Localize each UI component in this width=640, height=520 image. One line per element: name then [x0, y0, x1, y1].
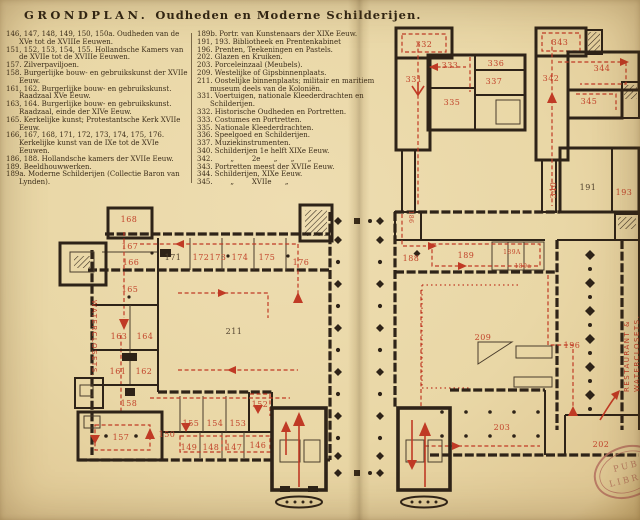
- room-label-191: 191: [580, 183, 597, 192]
- room-label-147: 147: [226, 443, 243, 452]
- route-arrow-right: [452, 442, 461, 450]
- legend-entry: 158. Burgerlijke bouw- en gebruikskunst …: [6, 70, 188, 86]
- room-label-152: 152: [252, 400, 269, 409]
- room-label-189a: 189a: [514, 263, 531, 270]
- legend-column-right: 189b. Portr. van Kunstenaars der XIXe Ee…: [197, 31, 393, 187]
- route-arrow-up: [293, 292, 303, 303]
- room-label-193: 193: [616, 188, 633, 197]
- room-label-165: 165: [122, 285, 139, 294]
- room-label-174: 174: [232, 253, 249, 262]
- room-label-337: 337: [486, 77, 503, 86]
- room-label-186: 186: [407, 211, 414, 224]
- room-label-340: 340: [549, 182, 558, 199]
- restaurant-label: RESTAURANT &: [623, 320, 631, 392]
- room-label-344: 344: [594, 64, 611, 73]
- room-label-202: 202: [593, 440, 610, 449]
- legend-entry: 161, 162. Burgerlijke bouw- en gebruiksk…: [6, 86, 188, 102]
- hall-203-202: 203 202: [425, 275, 639, 455]
- room-label-157: 157: [113, 433, 130, 442]
- room-label-150: 150: [159, 430, 176, 439]
- legend-entry: 146, 147, 148, 149, 150, 150a. Oudheden …: [6, 31, 188, 47]
- legend-entry: 345. „ XVIIe „: [197, 179, 393, 187]
- room-label-146: 146: [250, 441, 267, 450]
- central-colonnade: [334, 217, 384, 477]
- legend-entry: 211. Oostelijke binnenplaats; militair e…: [197, 78, 393, 94]
- entrance-tower-right: [398, 408, 450, 508]
- room-label-333: 333: [442, 61, 459, 70]
- route-arrow-up: [419, 422, 431, 436]
- north-gallery-right: 186 188 189 189A 189a: [395, 211, 560, 272]
- courtyard-209: 209: [421, 285, 552, 406]
- room-label-158: 158: [121, 399, 138, 408]
- north-gallery-left: 168 167 166 171 172 173 174 175 176: [88, 205, 332, 412]
- room-label-153: 153: [230, 419, 247, 428]
- room-label-164: 164: [137, 332, 154, 341]
- block-191-193: 191 193: [560, 148, 639, 240]
- route-arrow-down: [119, 319, 129, 330]
- route-arrow-left: [175, 240, 184, 248]
- room-label-154: 154: [207, 419, 224, 428]
- legend-entry: 166, 167, 168, 171, 172, 173, 174, 175, …: [6, 132, 188, 155]
- route-arrow-up: [547, 92, 557, 103]
- route-arrow-up: [145, 428, 155, 439]
- room-label-168: 168: [121, 215, 138, 224]
- room-label-203: 203: [494, 423, 511, 432]
- route-arrow-right: [218, 289, 227, 297]
- room-label-188: 188: [403, 254, 420, 263]
- route-arrow-down: [407, 460, 417, 470]
- waterclosets-label-left: WATERCLOSETS.: [90, 300, 98, 377]
- route-arrow-right: [620, 58, 629, 66]
- route-arrow-up: [281, 421, 291, 432]
- room-label-176: 176: [293, 258, 310, 267]
- legend-entry: 165. Kerkelijke kunst; Protestantsche Ke…: [6, 117, 188, 133]
- room-label-166: 166: [123, 258, 140, 267]
- room-label-211: 211: [226, 327, 243, 336]
- wing-331-337: 332 331 333 336 337 335: [396, 28, 525, 212]
- room-label-332: 332: [416, 40, 433, 49]
- route-arrow-right: [458, 262, 467, 270]
- room-label-343: 343: [552, 38, 569, 47]
- waterclosets-label-right: WATERCLOSETS.: [633, 315, 640, 392]
- room-label-345: 345: [581, 97, 598, 106]
- room-label-148: 148: [203, 443, 220, 452]
- room-label-189A: 189A: [503, 249, 521, 256]
- room-label-155: 155: [183, 419, 200, 428]
- room-label-149: 149: [181, 443, 198, 452]
- room-label-167: 167: [122, 242, 139, 251]
- legend-entry: 151, 152, 153, 154, 155. Hollandsche Kam…: [6, 47, 188, 63]
- room-label-209: 209: [475, 333, 492, 342]
- room-label-162: 162: [136, 367, 153, 376]
- room-label-175: 175: [259, 253, 276, 262]
- room-label-161: 161: [110, 367, 127, 376]
- room-label-172: 172: [193, 253, 210, 262]
- legend-entry: 331. Voertuigen, nationale Kleederdracht…: [197, 93, 393, 109]
- route-arrow-up: [568, 406, 578, 416]
- room-label-342: 342: [543, 74, 560, 83]
- room-label-336: 336: [488, 59, 505, 68]
- route-arrow-up: [293, 412, 305, 426]
- legend-entry: 189a. Moderne Schilderijen (Collectie Ba…: [6, 171, 188, 187]
- room-label-335: 335: [444, 98, 461, 107]
- stamp-text-line2: LIBR: [608, 473, 640, 490]
- route-arrow-up-right: [611, 390, 620, 400]
- west-wing: 165 163 164 161 162 158: [60, 243, 162, 455]
- route-arrow-left: [227, 366, 236, 374]
- room-label-173: 173: [210, 253, 227, 262]
- legend-entry: 163, 164. Burgerlijke bouw- en gebruiksk…: [6, 101, 188, 117]
- legend-divider: [191, 33, 192, 183]
- room-label-163: 163: [111, 332, 128, 341]
- room-label-189: 189: [458, 251, 475, 260]
- room-label-331: 331: [406, 75, 423, 84]
- legend-column-left: 146, 147, 148, 149, 150, 150a. Oudheden …: [6, 31, 188, 187]
- entrance-tower-left: [272, 408, 326, 508]
- room-label-171: 171: [165, 253, 182, 262]
